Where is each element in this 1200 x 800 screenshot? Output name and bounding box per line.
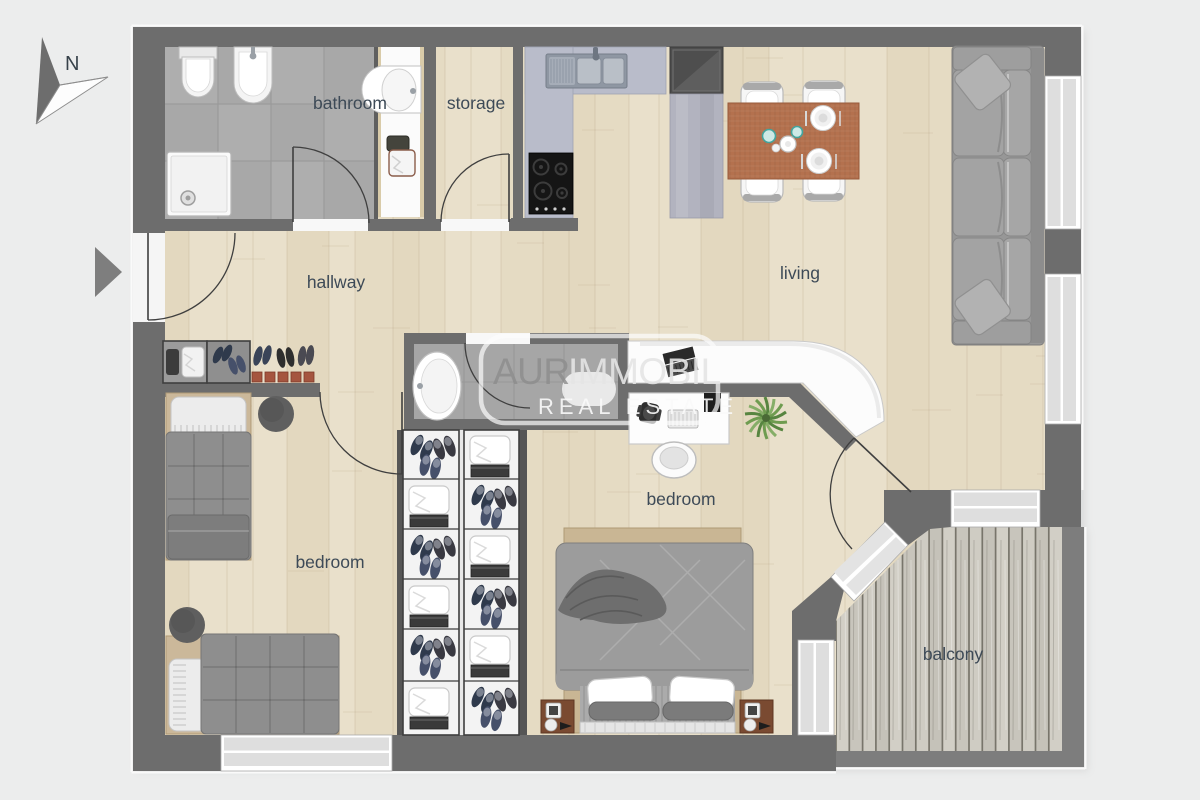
svg-text:bedroom: bedroom xyxy=(646,489,715,509)
svg-text:balcony: balcony xyxy=(923,644,984,664)
svg-text:IMMOBIL: IMMOBIL xyxy=(568,351,721,392)
svg-text:bedroom: bedroom xyxy=(295,552,364,572)
svg-text:hallway: hallway xyxy=(307,272,366,292)
svg-text:AUR: AUR xyxy=(493,351,570,392)
svg-text:living: living xyxy=(780,263,820,283)
svg-text:N: N xyxy=(65,53,79,75)
svg-text:bathroom: bathroom xyxy=(313,93,387,113)
svg-text:storage: storage xyxy=(447,93,505,113)
svg-text:REAL ESTATE: REAL ESTATE xyxy=(538,394,738,419)
